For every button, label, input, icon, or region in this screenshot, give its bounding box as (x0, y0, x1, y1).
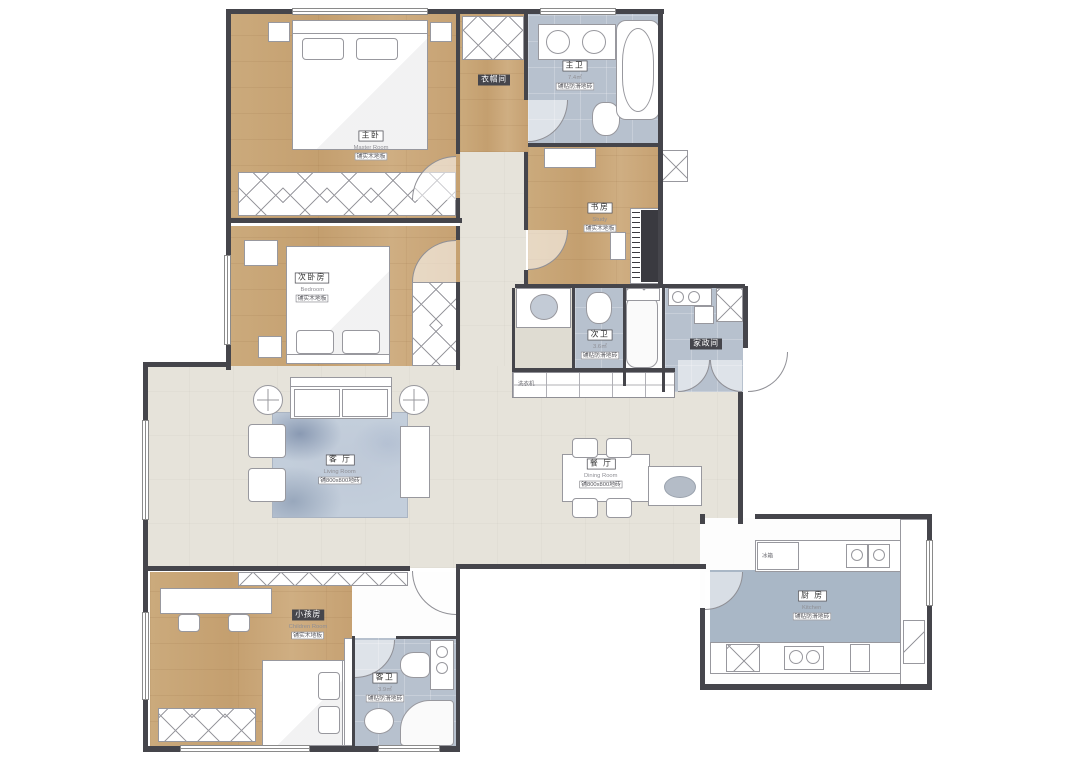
shower-room-cabinet (626, 288, 660, 301)
wall-study-right (658, 146, 663, 286)
room-name: 客 厅 (326, 455, 355, 466)
wall-kids-right (456, 566, 460, 752)
kids-chair-1 (178, 614, 200, 632)
second-bed-pillow-right (342, 330, 380, 354)
guest-bath-label: 次卫 3.6㎡ 铺贴防滑地砖 (567, 328, 633, 362)
dining-chair-3 (572, 498, 598, 518)
room-en: Bedroom (300, 286, 324, 292)
room-area: 3.9㎡ (378, 686, 392, 692)
wall-dining-bottom (456, 564, 706, 569)
kids-bath-sink (364, 708, 394, 734)
room-name: 书房 (588, 203, 613, 214)
kitchen-label: 厨 房 Kitchen 铺贴防滑地砖 (779, 589, 845, 623)
sofa-cushion-left (294, 389, 340, 417)
room-note: 铺贴防滑地砖 (556, 83, 594, 91)
door-main-entry (748, 352, 788, 392)
kitchen-small-unit (850, 644, 870, 672)
ceiling-light-left (253, 385, 283, 415)
kitchen-cabinet-hatch (726, 644, 760, 672)
wall-corridor-cabinet-top (512, 368, 675, 372)
master-nightstand-right (430, 22, 452, 42)
wall-master-second-divider (226, 218, 462, 223)
kids-top-cabinet (238, 572, 408, 586)
wall-bath-study-divider (528, 143, 660, 147)
room-name: 餐 厅 (587, 459, 616, 470)
room-name: 次卫 (588, 330, 613, 341)
room-note: 铺贴防滑地砖 (793, 613, 831, 621)
kids-chair-2 (228, 614, 250, 632)
wall-hall-study-upper (524, 152, 528, 230)
bathtub-basin (622, 28, 654, 112)
piano-keys (632, 210, 640, 282)
master-bath-sink-right (582, 30, 606, 54)
second-bedroom-label: 次卧房 Bedroom 铺实木地板 (284, 271, 340, 305)
kids-desk (160, 588, 272, 614)
second-wardrobe (412, 282, 458, 366)
window-master-bath (540, 8, 616, 15)
kids-bed-pillow-2 (318, 706, 340, 734)
dining-chair-2 (606, 438, 632, 458)
wall-bath-right (658, 9, 663, 150)
kids-bath-vanity-knob-1 (436, 646, 448, 658)
window-second-bedroom (224, 255, 231, 345)
second-side-table (244, 240, 278, 266)
sofa-back (290, 377, 392, 387)
utility-label: 家政间 (686, 337, 727, 351)
utility-cabinet (716, 288, 743, 322)
master-bed-pillow-left (302, 38, 344, 60)
room-name: 主卫 (563, 61, 588, 72)
room-name: 主卧 (359, 131, 384, 142)
window-living (142, 420, 149, 520)
wall-second-right-lower (456, 282, 460, 370)
closet-wardrobe (462, 16, 524, 60)
utility-sink-1 (672, 291, 684, 303)
wall-kitchen-top (755, 514, 932, 519)
wall-master-right-upper (456, 14, 460, 154)
master-bath-label: 主卫 7.4㎡ 铺贴防滑地砖 (542, 59, 608, 93)
window-master (292, 8, 428, 15)
corridor-cabinet-row (512, 372, 675, 398)
wall-master-right-lower (456, 198, 460, 220)
wall-kitchen-left-stub (700, 514, 705, 524)
room-note: 铺贴防滑地砖 (366, 695, 404, 703)
stove-burner-2 (806, 650, 820, 664)
master-nightstand-left (268, 22, 290, 42)
study-dresser (544, 148, 596, 168)
kitchen-tall-unit-lower (903, 620, 925, 664)
dining-chair-4 (606, 498, 632, 518)
room-name: 衣帽间 (478, 75, 510, 86)
room-note: 铺实木地板 (584, 225, 616, 233)
room-name: 厨 房 (798, 591, 827, 602)
window-kids-bottom (180, 745, 310, 752)
dining-island-sink (664, 476, 696, 498)
second-bed-headboard (286, 354, 390, 364)
ceiling-light-right (399, 385, 429, 415)
living-room-label: 客 厅 Living Room 铺800x800地砖 (303, 453, 377, 487)
window-kids-bath (378, 745, 440, 752)
master-bed-pillow-right (356, 38, 398, 60)
room-name: 次卧房 (295, 273, 329, 284)
room-note: 铺800x800地砖 (318, 477, 361, 485)
piano-bench (610, 232, 626, 260)
washbasin-sink (530, 294, 558, 320)
guest-bath-toilet (586, 292, 612, 324)
room-name: 小孩房 (292, 610, 324, 621)
stove-burner-1 (789, 650, 803, 664)
room-note: 铺实木地板 (296, 295, 328, 303)
master-bath-sink-left (546, 30, 570, 54)
room-en: Master Room (354, 144, 389, 150)
wall-kitchen-left (700, 608, 705, 688)
window-kids (142, 612, 149, 700)
dining-room-label: 餐 厅 Dining Room 铺800x800地砖 (564, 457, 638, 491)
room-note: 铺实木地板 (355, 153, 387, 161)
kids-bed-pillow-1 (318, 672, 340, 700)
kids-wardrobe (158, 708, 256, 742)
second-nightstand (258, 336, 282, 358)
room-en: Kitchen (802, 604, 821, 610)
ac-platform (662, 150, 688, 182)
wall-master-left (226, 9, 231, 222)
room-en: Study (593, 216, 608, 222)
fridge-label: 冰箱 (762, 551, 773, 559)
sofa-cushion-right (342, 389, 388, 417)
kitchen-sink-basin-2 (873, 549, 885, 561)
room-name: 客卫 (373, 673, 398, 684)
room-note: 铺800x800地砖 (579, 481, 622, 489)
room-en: Dining Room (584, 472, 618, 478)
floor-plan-canvas: 主卧 Master Room 铺实木地板 衣帽间 主卫 7.4㎡ 铺贴防滑地砖 … (0, 0, 1080, 764)
armchair-bottom (248, 468, 286, 502)
master-bed-headboard (292, 20, 428, 34)
room-en: Living Room (324, 468, 356, 474)
kitchen-sink-basin-1 (851, 549, 863, 561)
second-bed-pillow-left (296, 330, 334, 354)
kids-bath-vanity-knob-2 (436, 662, 448, 674)
wall-second-right-upper (456, 226, 460, 240)
utility-washer (694, 306, 714, 324)
wall-kitchen-bottom (700, 684, 932, 690)
wall-living-topleft (143, 362, 231, 367)
dining-chair-1 (572, 438, 598, 458)
study-label: 书房 Study 铺实木地板 (572, 201, 628, 235)
room-area: 7.4㎡ (568, 74, 582, 80)
wall-living-kids-divider (146, 566, 410, 571)
wall-kidsbath-top (396, 636, 456, 639)
washer-label: 洗衣机 (518, 379, 535, 387)
walk-in-closet-label: 衣帽间 (474, 73, 515, 87)
wall-dining-right (738, 392, 743, 524)
piano-body (641, 210, 658, 282)
wall-closet-bath-divider (524, 14, 528, 100)
armchair-top (248, 424, 286, 458)
utility-sink-2 (688, 291, 700, 303)
wall-washbasin-left (512, 288, 515, 372)
room-note: 铺贴防滑地砖 (581, 352, 619, 360)
kids-bath-label: 客卫 3.9㎡ 铺贴防滑地砖 (352, 671, 418, 705)
window-kitchen (926, 540, 933, 606)
room-note: 铺实木地板 (292, 632, 324, 640)
wall-utility-right-upper (743, 286, 748, 348)
room-en: Children Room (289, 623, 328, 629)
tv-console (400, 426, 430, 498)
master-bedroom-label: 主卧 Master Room 铺实木地板 (341, 129, 401, 163)
room-name: 家政间 (690, 339, 722, 350)
kids-room-label: 小孩房 Children Room 铺实木地板 (275, 608, 342, 642)
wall-utility-left (662, 288, 665, 392)
room-area: 3.6㎡ (593, 343, 607, 349)
wall-washblock-top (515, 284, 745, 288)
